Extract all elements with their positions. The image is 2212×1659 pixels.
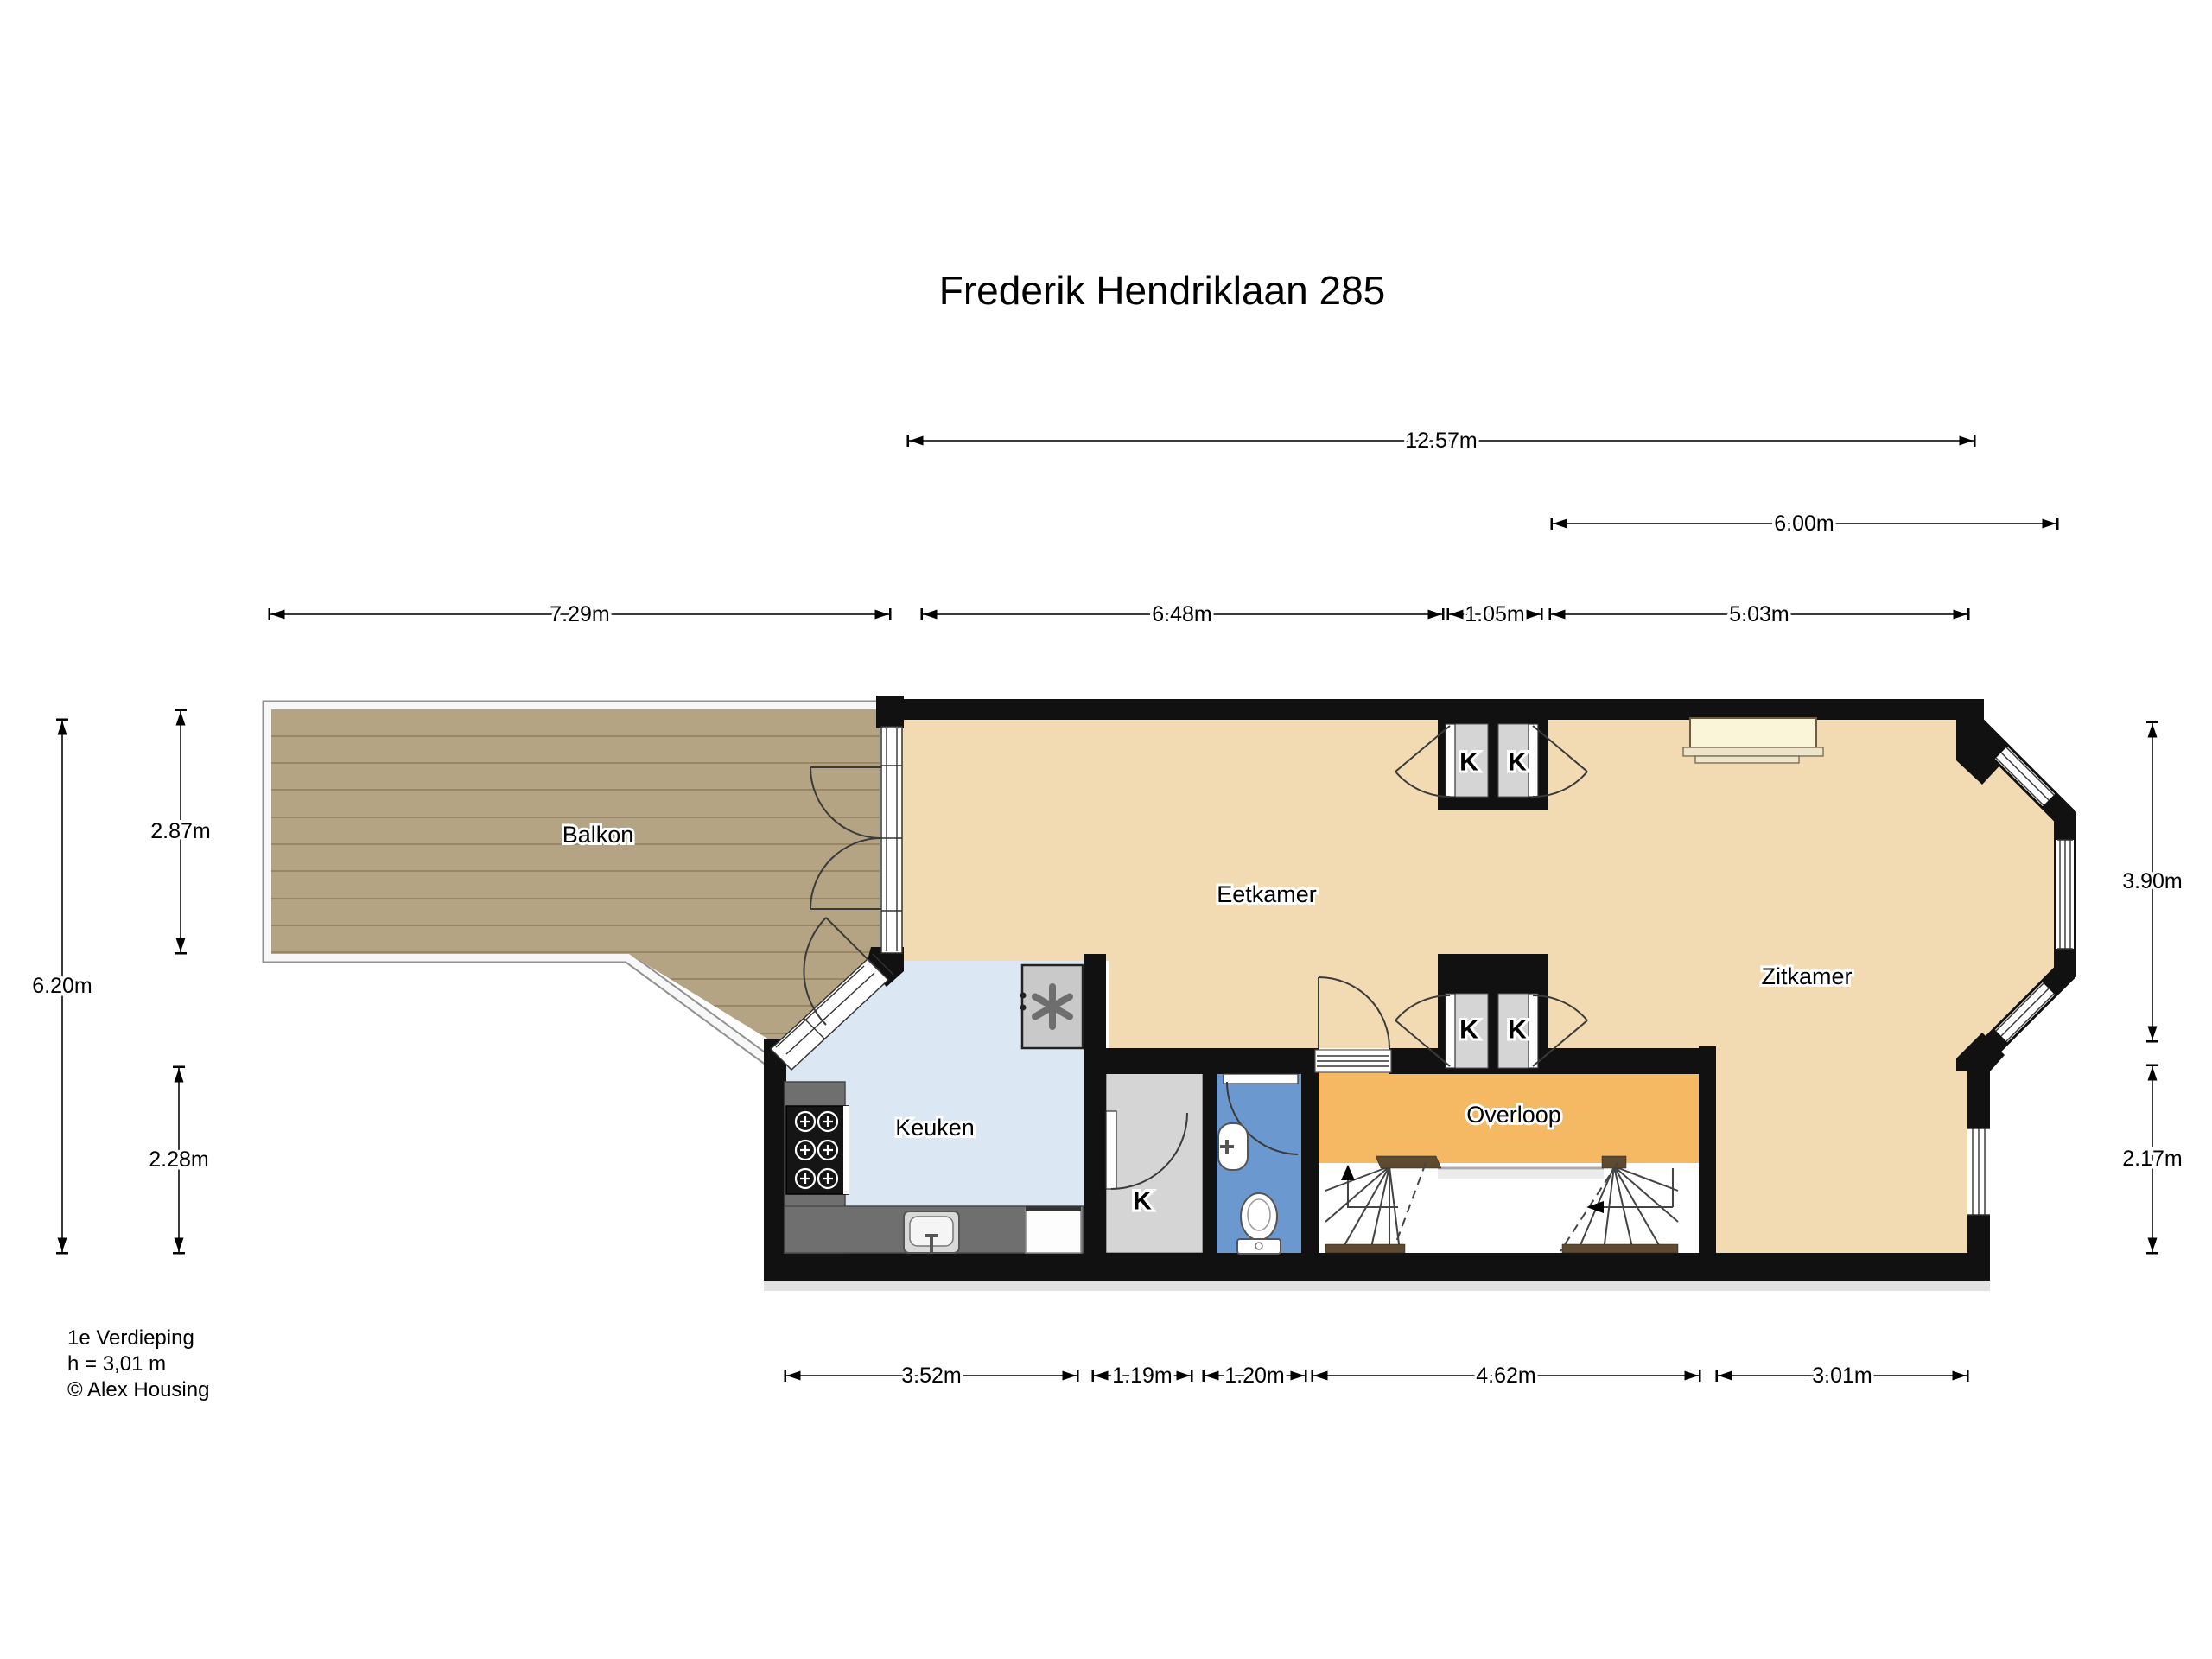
toilet-bowl [1237,1193,1281,1254]
dim-seg-503: 5.03m [1549,602,1969,626]
svg-text:6.48m: 6.48m [1152,602,1211,626]
floor-name: 1e Verdieping [67,1326,194,1350]
dim-closet-width: 1.19m [1092,1363,1192,1388]
dim-kitchen-width: 3.52m [785,1363,1078,1388]
closet-room-label: K [1133,1187,1152,1216]
svg-text:1.19m: 1.19m [1112,1363,1172,1388]
svg-text:3.01m: 3.01m [1812,1363,1872,1388]
balcony-label: Balkon [563,822,634,848]
right-wall-window [1967,1128,1990,1215]
dim-right-lower: 2.17m [2122,1065,2182,1254]
svg-text:1.05m: 1.05m [1465,602,1524,626]
svg-text:2.28m: 2.28m [149,1147,208,1172]
balcony-deck [271,709,880,1044]
svg-text:2.17m: 2.17m [2122,1147,2182,1171]
toilet-door-leaf [1224,1074,1298,1084]
dishwasher [1026,1206,1081,1253]
dim-kitchen-depth: 2.28m [149,1066,208,1254]
svg-text:2.87m: 2.87m [150,819,210,843]
svg-text:7.29m: 7.29m [550,602,609,626]
sitting-room-label: Zitkamer [1761,963,1852,989]
closet-door-leaf [1106,1111,1116,1189]
copyright: © Alex Housing [67,1378,209,1402]
dim-total-width: 12.57m [907,429,1975,453]
svg-text:3.90m: 3.90m [2122,869,2182,893]
closet-room-floor [1106,1071,1203,1253]
dim-left-total: 6.20m [32,719,92,1254]
svg-text:12.57m: 12.57m [1405,429,1477,453]
dim-sitting-width: 6.00m [1551,512,2058,536]
page-title: Frederik Hendriklaan 285 [939,268,1386,313]
kitchen-sink [904,1211,959,1253]
floorplan-page: Frederik Hendriklaan 285 Balkon [0,0,2212,1659]
closet-bottom-right-label: K [1508,1016,1527,1045]
balcony: Balkon [268,706,880,1071]
dim-balcony-width: 7.29m [269,602,891,626]
dim-dining-width: 6.48m [921,602,1444,626]
stove [786,1106,849,1194]
footer-block: 1e Verdieping h = 3,01 m © Alex Housing [67,1326,209,1402]
svg-text:6.00m: 6.00m [1774,512,1834,536]
ceiling-height: h = 3,01 m [67,1352,166,1376]
landing-label: Overloop [1466,1102,1561,1128]
svg-text:5.03m: 5.03m [1729,602,1789,626]
floorplan-canvas: Frederik Hendriklaan 285 Balkon [0,0,2212,1659]
closet-top-left-label: K [1459,748,1478,777]
dim-balcony-depth: 2.87m [150,709,210,954]
kitchen-label: Keuken [895,1115,975,1141]
fridge [1020,965,1084,1048]
svg-text:3.52m: 3.52m [901,1363,961,1388]
dim-right-upper: 3.90m [2122,721,2182,1042]
svg-text:4.62m: 4.62m [1476,1363,1535,1388]
dim-seg-105: 1.05m [1447,602,1542,626]
closet-bottom-left-label: K [1459,1016,1478,1045]
dim-toilet-width: 1.20m [1203,1363,1306,1388]
dim-landing-width: 4.62m [1312,1363,1700,1388]
toilet-sink [1218,1123,1248,1170]
svg-text:1.20m: 1.20m [1224,1363,1284,1388]
dining-room-label: Eetkamer [1217,881,1317,907]
dim-sitting-bottom: 3.01m [1716,1363,1968,1388]
svg-text:6.20m: 6.20m [32,974,92,998]
closet-top-right-label: K [1508,748,1527,777]
top-window [1683,718,1823,763]
